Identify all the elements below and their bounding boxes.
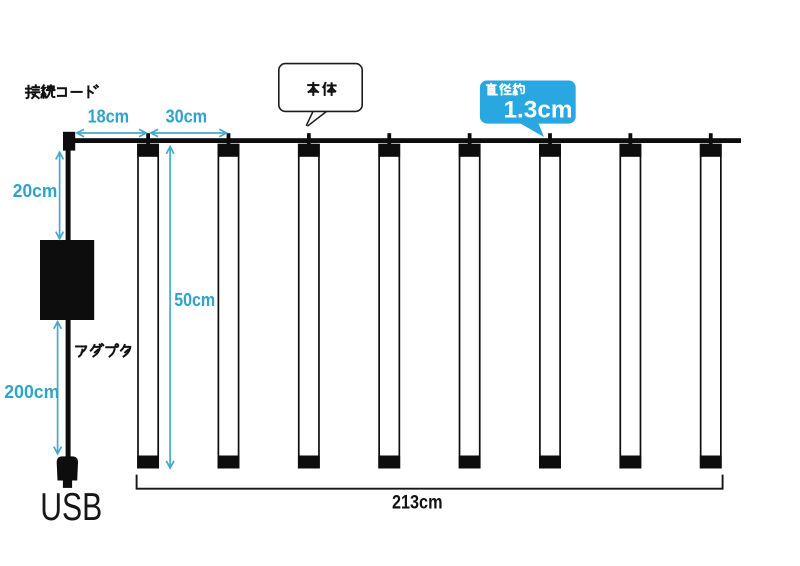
svg-text:50cm: 50cm <box>174 290 215 310</box>
svg-text:213cm: 213cm <box>392 492 443 514</box>
svg-text:USB: USB <box>40 486 102 529</box>
svg-text:20cm: 20cm <box>13 181 58 201</box>
svg-text:30cm: 30cm <box>166 107 208 127</box>
svg-text:18cm: 18cm <box>88 107 130 127</box>
svg-text:200cm: 200cm <box>4 382 59 402</box>
svg-text:1.3cm: 1.3cm <box>504 97 573 124</box>
